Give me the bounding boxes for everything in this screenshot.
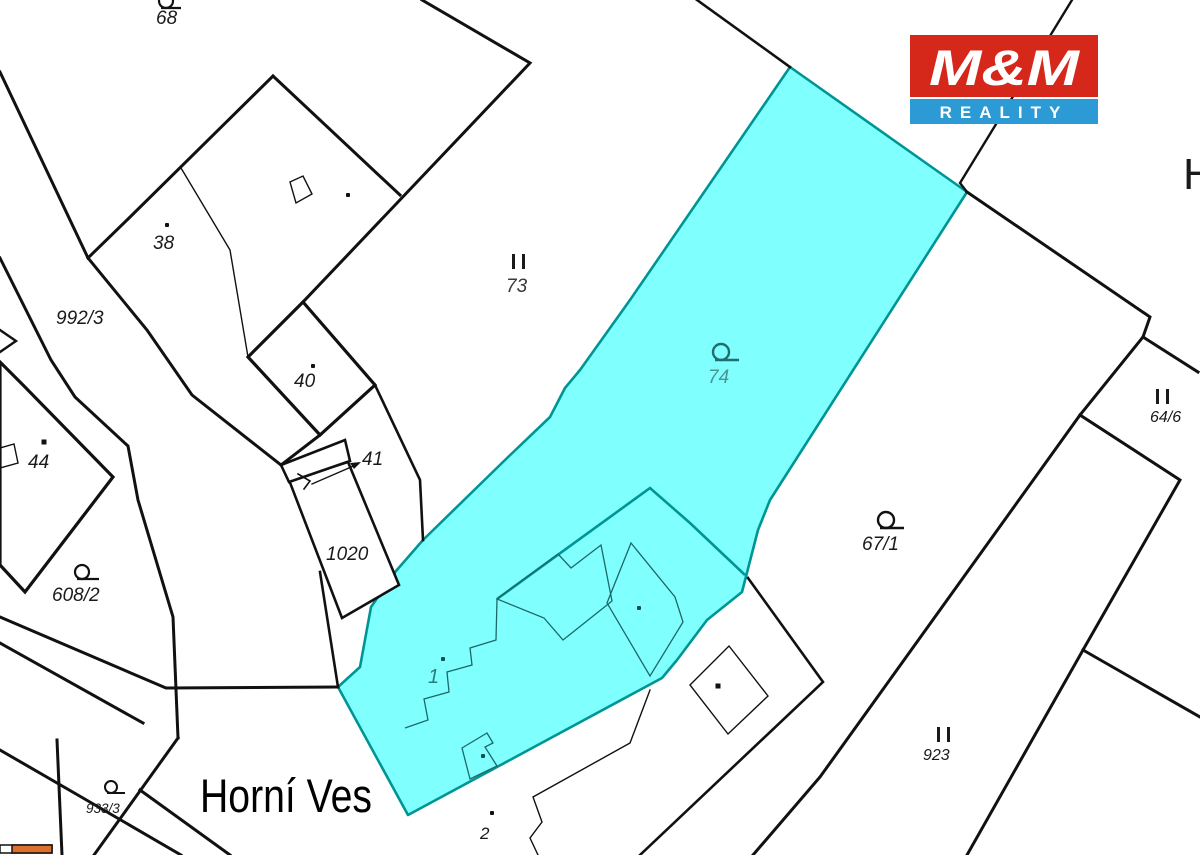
parcel-label-1: 1 [428, 666, 439, 688]
meadow-symbol-73-bar-2 [522, 254, 525, 269]
dot-building-right [637, 606, 641, 610]
edge-partial-label: H [1183, 150, 1200, 199]
parcel-label-608-2: 608/2 [52, 585, 100, 606]
dot-building-small [481, 754, 485, 758]
parcel-label-67-1: 67/1 [862, 534, 899, 555]
parcel-label-933-3: 933/3 [86, 801, 120, 816]
dot-parcel-2 [490, 811, 494, 815]
town-label: Horní Ves [200, 769, 372, 822]
meadow-symbol-64-1-bar-2 [947, 727, 950, 742]
dot-above-38 [165, 223, 169, 227]
dot-building-row [716, 684, 721, 689]
parcel-label-41: 41 [362, 449, 383, 470]
parcel-label-1020: 1020 [326, 544, 369, 565]
map-viewport: 6838992/34044411020608/2933/3737467/164/… [0, 0, 1200, 855]
parcel-label-2: 2 [479, 824, 490, 843]
dot-building-ne-38 [346, 193, 350, 197]
meadow-symbol-64-1-bar-1 [937, 727, 940, 742]
meadow-symbol-64-6-bar-2 [1166, 389, 1169, 404]
dot-parcel-1 [441, 657, 445, 661]
parcel-label-38: 38 [153, 233, 175, 254]
parcel-label-44: 44 [28, 452, 49, 473]
parcel-label-73: 73 [506, 276, 528, 297]
dot-building-44 [42, 440, 47, 445]
parcel-label-64-6: 64/6 [1150, 409, 1181, 426]
cadastral-map[interactable]: 6838992/34044411020608/2933/3737467/164/… [0, 0, 1200, 855]
parcel-label-74: 74 [708, 367, 729, 388]
scale-bar-orange-segment [12, 845, 52, 853]
meadow-symbol-64-6-bar-1 [1156, 389, 1159, 404]
mm-reality-logo-bottom-text: REALITY [940, 103, 1069, 122]
meadow-symbol-73-bar-1 [512, 254, 515, 269]
parcel-label-64-1: 923 [923, 747, 950, 764]
parcel-label-68: 68 [156, 8, 178, 29]
parcel-label-40: 40 [294, 371, 316, 392]
mm-reality-logo-top-text: M&M [929, 40, 1081, 96]
parcel-label-992-3: 992/3 [56, 308, 104, 329]
dot-building-40 [311, 364, 315, 368]
